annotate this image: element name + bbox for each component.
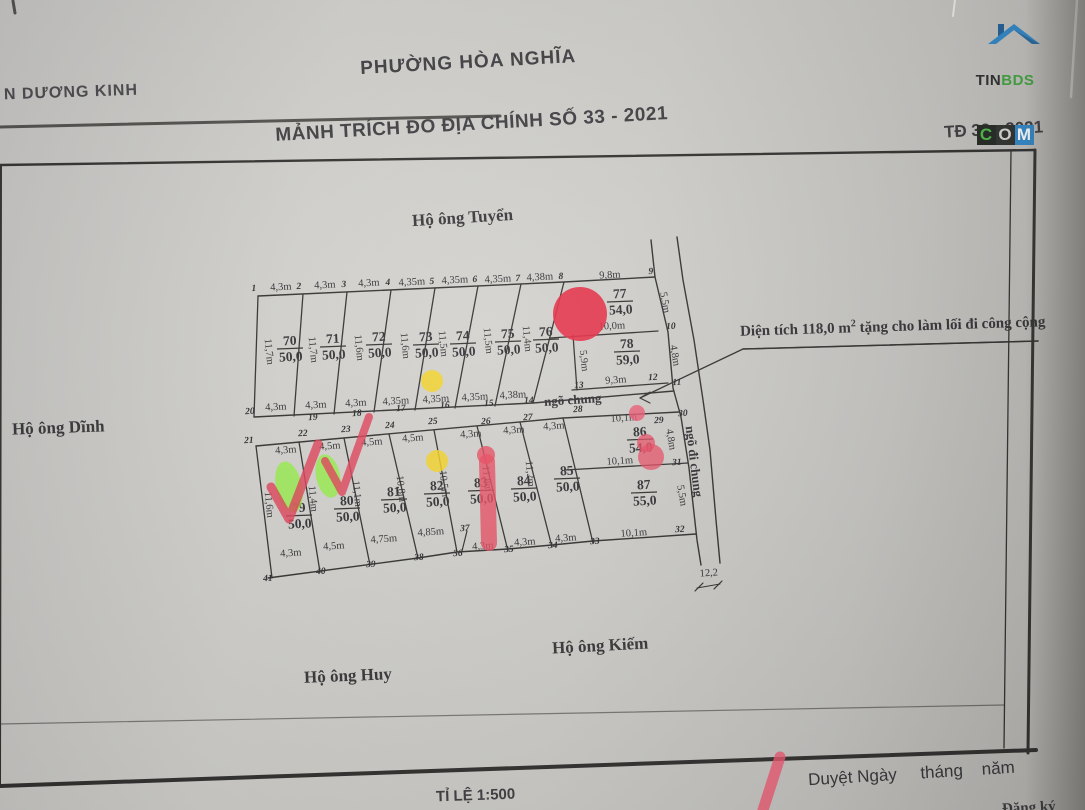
point-number: 36 xyxy=(452,549,463,560)
point-number: 37 xyxy=(459,524,471,535)
plot-number: 74 xyxy=(456,328,471,344)
plot-number: 70 xyxy=(283,333,298,349)
point-number: 12 xyxy=(648,373,658,383)
point-number: 23 xyxy=(340,425,351,436)
red-circle-marker xyxy=(553,287,607,341)
plot-area: 50,0 xyxy=(322,346,347,362)
point-number: 34 xyxy=(547,541,558,552)
point-number: 8 xyxy=(558,272,564,282)
point-number: 38 xyxy=(413,553,424,564)
plot-area: 50,0 xyxy=(497,341,522,357)
red-blob-marker xyxy=(638,444,664,470)
plot-area: 55,0 xyxy=(633,492,658,508)
point-number: 5 xyxy=(429,277,435,287)
dimension-label: 4,35m xyxy=(484,273,511,285)
point-number: 18 xyxy=(352,409,362,419)
dimension-label: 11,7m xyxy=(306,336,320,363)
sheet-title: MẢNH TRÍCH ĐO ĐỊA CHÍNH SỐ 33 - 2021 xyxy=(152,96,792,154)
red-bar-marker xyxy=(487,462,489,543)
point-number: 32 xyxy=(674,525,685,536)
leader-line xyxy=(640,341,1038,398)
point-number: 6 xyxy=(472,275,478,285)
point-number: 21 xyxy=(243,436,254,447)
map-border-right-outer xyxy=(1028,150,1035,753)
plot-area: 50,0 xyxy=(452,343,477,359)
paper-edge xyxy=(953,0,955,16)
dimension-label: 4,3m xyxy=(460,428,482,440)
logo-line2: COM xyxy=(966,125,1044,145)
dimension-label: 4,3m xyxy=(275,444,297,456)
parcel-boundary xyxy=(254,296,258,417)
dimension-label: 9,3m xyxy=(605,374,627,386)
point-number: 15 xyxy=(484,399,494,409)
dimension-label: 5,9m xyxy=(577,350,590,372)
red-dot-marker xyxy=(629,405,645,421)
point-number: 27 xyxy=(522,413,534,424)
dimension-label: 11,5m xyxy=(481,327,495,354)
dimension-label: 4,3m xyxy=(503,424,525,436)
dimension-label: 4,3m xyxy=(543,420,565,432)
dimension-label: 10,1m xyxy=(620,527,647,540)
dimension-label: 4,3m xyxy=(305,399,327,411)
corner-tick xyxy=(13,1,15,13)
dimension-label: 4,3m xyxy=(265,401,287,413)
partial-text-dang-ky: Đăng ký xyxy=(1002,799,1057,810)
point-number: 24 xyxy=(384,421,395,432)
plot-area: 50,0 xyxy=(513,488,538,504)
plot-area: 50,0 xyxy=(279,348,304,364)
neighbor-label-huy: Hộ ông Huy xyxy=(304,664,393,688)
point-number: 11 xyxy=(672,378,681,388)
point-number: 2 xyxy=(295,282,302,292)
map-border-right-inner xyxy=(1004,151,1011,748)
plot-area: 50,0 xyxy=(336,508,361,524)
plot-number: 76 xyxy=(539,324,554,340)
dimension-label: 12,2 xyxy=(699,567,718,579)
road-right-line xyxy=(677,237,720,563)
yellow-dot-marker xyxy=(426,450,448,472)
map-border-left xyxy=(0,166,1,786)
point-number: 13 xyxy=(574,381,584,391)
dimension-label: 9,8m xyxy=(599,269,621,281)
point-number: 10 xyxy=(666,322,676,332)
plot-area: 54,0 xyxy=(609,301,634,317)
dimension-label: 4,38m xyxy=(526,271,553,283)
photographed-cadastral-document: 7050,07150,07250,07350,07450,07550,07650… xyxy=(0,0,1085,810)
point-number: 41 xyxy=(262,574,273,585)
dimension-label: 4,3m xyxy=(514,536,536,548)
plot-number: 72 xyxy=(372,329,387,345)
dimension-label: 4,3m xyxy=(358,277,380,289)
plot-area: 50,0 xyxy=(556,478,581,494)
dimension-label: 11,4m xyxy=(306,485,320,512)
plot-area: 59,0 xyxy=(616,351,641,367)
road-left-line xyxy=(651,240,701,565)
dimension-label: 4,3m xyxy=(345,397,367,409)
point-number: 25 xyxy=(427,417,438,428)
dimension-label: 4,3m xyxy=(314,279,336,291)
point-number: 31 xyxy=(671,458,682,469)
dimension-label: 4,3m xyxy=(555,532,577,544)
point-number: 19 xyxy=(308,413,318,423)
point-number: 22 xyxy=(297,429,308,440)
dimension-label: 4,35m xyxy=(398,276,425,288)
point-number: 35 xyxy=(503,545,514,556)
dimension-label: 4,5m xyxy=(323,540,345,552)
point-number: 26 xyxy=(480,417,491,428)
dimension-label: 5,5m xyxy=(657,291,672,314)
map-scale-label: TỈ LỆ 1:500 xyxy=(436,786,516,806)
point-number: 3 xyxy=(340,280,347,290)
dimension-label: 4,38m xyxy=(499,389,526,401)
yellow-dot-marker xyxy=(421,370,443,392)
plot-number: 75 xyxy=(501,326,516,342)
plot-number: 78 xyxy=(620,336,635,352)
plot-number: 85 xyxy=(560,463,575,479)
dimension-label: 4,3m xyxy=(270,281,292,293)
tinbds-watermark: TINBDS COM xyxy=(966,4,1044,181)
dimension-label: 5,5m xyxy=(674,484,689,507)
dimension-label: 11,6m xyxy=(398,332,412,359)
point-number: 39 xyxy=(365,560,376,571)
dimension-label: 4,75m xyxy=(370,533,397,546)
dimension-label: 4,5m xyxy=(319,440,341,452)
paper-edge xyxy=(1071,0,1077,97)
dimension-label: 11,7m xyxy=(262,338,276,365)
point-number: 7 xyxy=(515,274,522,284)
point-number: 4 xyxy=(384,278,391,288)
dimension-label: 11,6m xyxy=(352,334,366,361)
logo-line1: TINBDS xyxy=(966,73,1044,88)
plot-number: 73 xyxy=(419,329,434,345)
dimension-label: 10,1m xyxy=(606,455,633,468)
dimension-label: 4,8m xyxy=(663,428,678,451)
point-number: 16 xyxy=(440,401,450,411)
point-number: 14 xyxy=(524,396,534,406)
dimension-label: 4,5m xyxy=(402,432,424,444)
ward-name: PHƯỜNG HÒA NGHĨA xyxy=(148,34,788,92)
point-number: 40 xyxy=(315,567,326,578)
point-number: 20 xyxy=(244,407,255,418)
alley-label: ngõ chung xyxy=(544,390,603,409)
map-border-bottom-inner xyxy=(0,705,1004,724)
point-number: 29 xyxy=(653,416,664,427)
dimension-label: 4,85m xyxy=(417,526,444,539)
plot-area: 50,0 xyxy=(383,499,408,515)
neighbor-label-dinh: Hộ ông Dĩnh xyxy=(12,416,105,439)
plot-area: 50,0 xyxy=(368,344,393,360)
dimension-label: 4,3m xyxy=(280,547,302,559)
point-number: 33 xyxy=(589,537,600,548)
plot-number: 71 xyxy=(326,331,341,347)
dimension-label: 4,35m xyxy=(441,274,468,286)
plot-number: 87 xyxy=(637,477,652,493)
red-pen-stroke xyxy=(763,757,780,810)
plot-area: 50,0 xyxy=(535,339,560,355)
point-number: 9 xyxy=(648,267,654,277)
point-number: 1 xyxy=(251,284,256,294)
red-bar-cap-marker xyxy=(477,446,495,464)
dimension-label: 11,4m xyxy=(520,325,534,352)
plot-number: 77 xyxy=(613,286,628,302)
house-roof-icon xyxy=(986,22,1042,50)
plot-area: 50,0 xyxy=(415,344,440,360)
dimension-label: 4,8m xyxy=(667,344,682,367)
point-number: 30 xyxy=(677,409,688,420)
